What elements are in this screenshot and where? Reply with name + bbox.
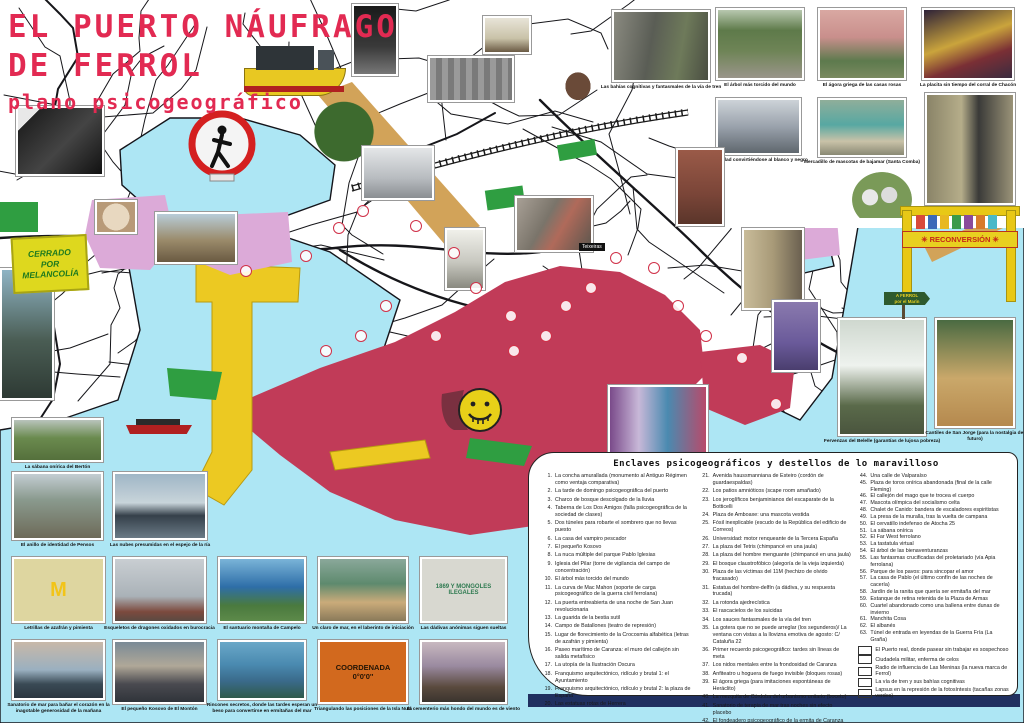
legend-item-number: 26.: [701, 536, 710, 543]
legend-item-text: La casa de Pablo (el último confín de la…: [870, 575, 1009, 589]
legend-item-number: 53.: [858, 541, 867, 548]
legend-item-number: 8.: [543, 552, 552, 559]
hanging-cloth: [976, 215, 985, 229]
numbered-marker: [700, 330, 712, 342]
legend-item: 18. Franquismo arquitectónico, ridículo …: [543, 671, 694, 685]
photo-caption: La placita sin tiempo del corral de Chac…: [905, 83, 1024, 89]
photo-image: [155, 212, 237, 264]
collage-photo: 1869 Y MONGOLES ILEGALES Las dádivas anó…: [420, 557, 507, 623]
legend-item-text: Parque de los pavos: para sincopar el am…: [870, 569, 973, 576]
photo-caption: El ágora griega de las casas rosas: [802, 83, 922, 89]
photo-image: [113, 640, 206, 704]
collage-photo: [95, 200, 137, 234]
hanging-cloth: [928, 215, 937, 229]
legend-item: 20. Las estatuas rotas de Herrera: [543, 701, 694, 708]
numbered-marker: [410, 220, 422, 232]
legend-item: 47. Mascota olímpica del socialismo celt…: [858, 500, 1009, 507]
collage-photo: El ágora griega de las casas rosas: [818, 8, 906, 80]
legend-item-number: 24.: [701, 512, 710, 519]
collage-photo: [676, 148, 724, 226]
collage-photo: El pequeño Kosovo de El Montón: [113, 640, 206, 704]
photo-image: [12, 418, 103, 462]
legend-color-swatch: [858, 689, 872, 698]
collage-photo: Cantiles de San Jorge (para la nostalgia…: [935, 318, 1015, 428]
legend-item-text: El ágora griega (para imitaciones espont…: [713, 679, 852, 693]
legend-item-number: 16.: [543, 647, 552, 661]
legend-item-number: 11.: [543, 585, 552, 599]
photo-caption: El cementerio más hondo del mundo es de …: [404, 707, 522, 713]
legend-color-row: Ciudadela militar, enferma de celos: [858, 655, 1009, 664]
pedestrian-sign: [188, 110, 256, 182]
legend-item: 63. Túnel de entrada en leyendas de la G…: [858, 630, 1009, 644]
legend-item-number: 31.: [701, 585, 710, 599]
photo-image: [925, 93, 1015, 205]
legend-item-text: Primer recuerdo psicogeográfico: tardes …: [713, 647, 852, 661]
photo-image: [612, 10, 710, 82]
legend-item-text: La curva de Mac Mahon (soporte de carga …: [555, 585, 694, 599]
legend-item: 13. La guarida de la bestia sutil: [543, 615, 694, 622]
numbered-marker: [320, 345, 332, 357]
legend-item: 7. El pequeño Kosovo: [543, 544, 694, 551]
numbered-marker: [610, 252, 622, 264]
photo-image: [742, 228, 804, 310]
legend-item-text: Fósil inexplicable (escudo de la Repúbli…: [713, 520, 852, 534]
legend-item: 56. Parque de los pavos: para sincopar e…: [858, 569, 1009, 576]
legend-item-text: Mascota olímpica del socialismo celta: [870, 500, 959, 507]
cerrado-por-melancolia-sign: CERRADO POR MELANCOLÍA: [11, 234, 90, 294]
legend-item-number: 41.: [701, 703, 710, 717]
legend-item-number: 33.: [701, 608, 710, 615]
photo-image: [818, 98, 906, 157]
legend-item-number: 44.: [858, 473, 867, 480]
legend-item: 14. Campo de Batallones (teatro de repre…: [543, 623, 694, 630]
photo-image: [218, 557, 306, 623]
legend-item-text: Sanatorio de terapia de mar tras noches …: [713, 703, 852, 717]
hanging-cloth: [916, 215, 925, 229]
legend-item-text: Las estatuas rotas de Herrera: [555, 701, 626, 708]
legend-item-number: 47.: [858, 500, 867, 507]
legend-item: 60. Cuartel abandonado como una ballena …: [858, 603, 1009, 617]
numbered-marker: [560, 300, 572, 312]
cargo-ship-collage: [126, 416, 192, 434]
collage-photo: Sanatorio de mar para bañar el corazón e…: [12, 640, 105, 700]
numbered-marker: [508, 345, 520, 357]
map-title-line2: DE FERROL: [8, 47, 398, 86]
legend-item-number: 19.: [543, 686, 552, 700]
legend-item-number: 25.: [701, 520, 710, 534]
numbered-marker: [505, 310, 517, 322]
hanging-cloth: [988, 215, 997, 229]
collage-photo: La sábana onírica del Bertón: [12, 418, 103, 462]
legend-item-text: La concha amurallada (monumento al Antig…: [555, 473, 694, 487]
numbered-marker: [585, 282, 597, 294]
legend-item-number: 23.: [701, 497, 710, 511]
map-title-block: EL PUERTO NÁUFRAGO DE FERROL plano psico…: [8, 8, 398, 114]
legend-item-number: 45.: [858, 480, 867, 494]
legend-item: 11. La curva de Mac Mahon (soporte de ca…: [543, 585, 694, 599]
legend-item-text: La gotera que no se puede arreglar (los …: [713, 625, 852, 645]
ship-deck: [136, 419, 180, 426]
legend-item-number: 4.: [543, 505, 552, 519]
legend-item-text: La guarida de la bestia sutil: [555, 615, 620, 622]
legend-item-number: 63.: [858, 630, 867, 644]
legend-item-text: La sábana onírica: [870, 528, 912, 535]
legend-item: 51. La sábana onírica: [858, 528, 1009, 535]
legend-item: 57. La casa de Pablo (el último confín d…: [858, 575, 1009, 589]
legend-item-text: Universidad: motor renqueante de la Terc…: [713, 536, 838, 543]
photo-image: [95, 200, 137, 234]
legend-item-text: El fondeadero psicogeográfico de la ermi…: [713, 718, 844, 723]
legend-item: 6. La casa del vampiro pescador: [543, 536, 694, 543]
numbered-marker: [240, 265, 252, 277]
legend-title: Enclaves psicogeográficos y destellos de…: [543, 459, 1009, 469]
legend-item-text: La nuca múltiple del parque Pablo Iglesi…: [555, 552, 655, 559]
legend-item-number: 18.: [543, 671, 552, 685]
legend-item-number: 9.: [543, 561, 552, 575]
teixeiras-label: Teixeiras: [579, 243, 605, 251]
legend-item-number: 6.: [543, 536, 552, 543]
legend-item-number: 39.: [701, 679, 710, 693]
photo-image: [483, 16, 531, 54]
legend-item-text: La tarde de domingo psicogeográfica del …: [555, 488, 668, 495]
photo-image: [772, 300, 820, 372]
legend-item-number: 54.: [858, 548, 867, 555]
legend-item-text: La presa de la muralla, tras la vuelta d…: [870, 514, 987, 521]
legend-item-number: 61.: [858, 616, 867, 623]
legend-item-number: 5.: [543, 520, 552, 534]
legend-item-text: Estanque de retina retenida de la Plaza …: [870, 596, 988, 603]
legend-color-swatch: [858, 655, 872, 664]
legend-item-number: 60.: [858, 603, 867, 617]
ferrol-signpost: A FERROL por el Marín: [884, 292, 930, 319]
legend-item-text: El rascacielos de los suicidas: [713, 608, 783, 615]
collage-photo: Mercadillo de mascotas de bajamar (Santa…: [818, 98, 906, 157]
numbered-marker: [448, 247, 460, 259]
legend-item-number: 10.: [543, 576, 552, 583]
legend-item: 50. El cervatillo indefenso de Atocha 25: [858, 521, 1009, 528]
legend-item-text: Cuartel abandonado como una ballena entr…: [870, 603, 1009, 617]
legend-color-swatch: [858, 678, 872, 687]
legend-item-number: 57.: [858, 575, 867, 589]
map-subtitle: plano psicogeográfico: [8, 90, 398, 114]
collage-photo: El anillo de identidad de Pensos: [12, 472, 103, 540]
numbered-marker: [357, 205, 369, 217]
collage-photo: [772, 300, 820, 372]
legend-item-text: La plaza del hombre menguante (chimpancé…: [713, 552, 851, 559]
hanging-cloth: [964, 215, 973, 229]
legend-item-text: Una calle de Valparaíso: [870, 473, 926, 480]
legend-item-text: Los sauces fantasmales de la vía del tre…: [713, 617, 811, 624]
legend-item-text: Campo de Batallones (teatro de represión…: [555, 623, 656, 630]
collage-photo: [556, 62, 600, 106]
numbered-marker: [380, 300, 392, 312]
legend-item: 39. El ágora griega (para imitaciones es…: [701, 679, 852, 693]
legend-item: 24. Plaza de Amboaxe: una mascota vestid…: [701, 512, 852, 519]
legend-item: 12. La puerta entreabierta de una noche …: [543, 600, 694, 614]
legend-item: 42. El fondeadero psicogeográfico de la …: [701, 718, 852, 723]
signpost-line2: por el Marín: [895, 299, 920, 304]
legend-item: 10. El árbol más torcido del mundo: [543, 576, 694, 583]
signpost-line1: A FERROL: [896, 293, 918, 298]
numbered-marker: [470, 282, 482, 294]
signpost-arrow: A FERROL por el Marín: [884, 292, 930, 305]
collage-photo: [428, 56, 514, 102]
legend-item: 62. El albanés: [858, 623, 1009, 630]
collage-photo: [483, 16, 531, 54]
hanging-cloth: [952, 215, 961, 229]
legend-panel: Enclaves psicogeográficos y destellos de…: [528, 452, 1018, 696]
legend-item: 38. Anfiteatro u hoguera de fuego invisi…: [701, 671, 852, 678]
legend-item-text: La puerta entreabierta de una noche de S…: [555, 600, 694, 614]
legend-item-text: Jardín de la ranita que quería ser ermit…: [870, 589, 990, 596]
legend-item-text: Plaza de las víctimas del 11M (hechizo d…: [713, 569, 852, 583]
photo-caption: Mercadillo de mascotas de bajamar (Santa…: [802, 160, 922, 166]
legend-color-row: El Puerto real, donde pasear sin trabaja…: [858, 646, 1009, 655]
photo-caption: Las bahías cognitivas y fantasmales de l…: [594, 85, 727, 91]
numbered-marker: [672, 300, 684, 312]
legend-item-number: 36.: [701, 647, 710, 661]
photo-image: [318, 557, 408, 623]
legend-item: 34. Los sauces fantasmales de la vía del…: [701, 617, 852, 624]
hanging-cloth: [940, 215, 949, 229]
legend-item: 53. La tastatula virtual: [858, 541, 1009, 548]
legend-item-number: 51.: [858, 528, 867, 535]
legend-item-text: La utopía de la Ilustración Oscura: [555, 662, 635, 669]
photo-image: [420, 640, 507, 704]
legend-item-text: Plaza de toros onírica abandonada (final…: [870, 480, 1009, 494]
legend-color-row: La vía de tren y sus bahías cognitivas: [858, 678, 1009, 687]
legend-item: 41. Sanatorio de terapia de mar tras noc…: [701, 703, 852, 717]
legend-color-label: Lapsus en la represión de la fotosíntesi…: [875, 687, 1009, 699]
legend-item-number: 52.: [858, 534, 867, 541]
legend-item-text: La casa del vampiro pescador: [555, 536, 626, 543]
legend-item-number: 29.: [701, 561, 710, 568]
legend-item: 61. Manchita Cosa: [858, 616, 1009, 623]
legend-color-swatch: [858, 667, 872, 676]
legend-item-text: El cervatillo indefenso de Atocha 25: [870, 521, 955, 528]
photo-inner-text: COORDENADA 0°0'0'': [318, 640, 408, 704]
photo-inner-text: 1869 Y MONGOLES ILEGALES: [420, 557, 507, 623]
legend-item: 17. La utopía de la Ilustración Oscura: [543, 662, 694, 669]
legend-color-key: El Puerto real, donde pasear sin trabaja…: [858, 645, 1009, 699]
legend-item: 19. Franquismo arquitectónico, ridículo …: [543, 686, 694, 700]
legend-item-number: 14.: [543, 623, 552, 630]
collage-photo: [155, 212, 237, 264]
legend-item-number: 3.: [543, 497, 552, 504]
photo-image: [676, 148, 724, 226]
legend-item-text: Avenida haussmanniana de Esteiro (cordón…: [713, 473, 852, 487]
legend-item: 33. El rascacielos de los suicidas: [701, 608, 852, 615]
reconversion-swings-collage: [900, 206, 1018, 302]
photo-inner-text: M: [12, 557, 105, 623]
collage-photo: [742, 228, 804, 310]
legend-item-text: El albanés: [870, 623, 895, 630]
legend-item-text: Plaza de Amboaxe: una mascota vestida: [713, 512, 810, 519]
photo-image: [445, 228, 485, 290]
legend-item-number: 22.: [701, 488, 710, 495]
legend-item-text: El árbol de las bienaventuranzas: [870, 548, 948, 555]
numbered-marker: [736, 352, 748, 364]
legend-item-number: 34.: [701, 617, 710, 624]
legend-item-number: 49.: [858, 514, 867, 521]
collage-photo: M Letrillas de azafrán y pimienta: [12, 557, 105, 623]
legend-item: 23. Los jeroglíficos benjaminianos del e…: [701, 497, 852, 511]
legend-item: 55. Las fantasmas crucificadas del prole…: [858, 555, 1009, 569]
legend-item-text: El árbol más torcido del mundo: [555, 576, 629, 583]
photo-image: [716, 8, 804, 80]
legend-color-label: Radio de influencia de Las Meninas (la n…: [875, 665, 1009, 677]
legend-color-label: Ciudadela militar, enferma de celos: [875, 657, 958, 663]
smiley-face-icon: [459, 389, 501, 431]
legend-item: 37. Los nidos mentales entre la frondosi…: [701, 662, 852, 669]
legend-item-number: 30.: [701, 569, 710, 583]
legend-item: 15. Lugar de florecimiento de la Crocosm…: [543, 632, 694, 646]
legend-item: 4. Taberna de Los Dos Amigos (falla psic…: [543, 505, 694, 519]
legend-item: 40. La mezquita de Córdoba del urbanismo…: [701, 694, 852, 701]
legend-item: 49. La presa de la muralla, tras la vuel…: [858, 514, 1009, 521]
legend-item-text: Iglesia del Pilar (torre de vigilancia d…: [555, 561, 694, 575]
legend-item: 30. Plaza de las víctimas del 11M (hechi…: [701, 569, 852, 583]
collage-photo: [362, 146, 434, 200]
photo-image: [935, 318, 1015, 428]
collage-photo: [16, 106, 104, 176]
legend-item-text: La mezquita de Córdoba del urbanismo uni…: [713, 694, 847, 701]
legend-item-text: Manchita Cosa: [870, 616, 906, 623]
legend-item-text: Franquismo arquitectónico, ridículo y br…: [555, 671, 694, 685]
numbered-marker: [300, 250, 312, 262]
legend-item-number: 38.: [701, 671, 710, 678]
legend-item: 52. El Far West ferrolano: [858, 534, 1009, 541]
legend-item-number: 21.: [701, 473, 710, 487]
legend-item-text: Chalet de Canido: bandera de escaladores…: [870, 507, 998, 514]
legend-item-number: 17.: [543, 662, 552, 669]
legend-item-text: Estatua del hombre-delfín (a dádiva, y s…: [713, 585, 852, 599]
collage-photo: La ciudad convirtiéndose al blanco y neg…: [716, 98, 801, 155]
photo-image: [922, 8, 1014, 80]
legend-item: 27. La plaza del Tetris (chimpancé en un…: [701, 544, 852, 551]
legend-item: 54. El árbol de las bienaventuranzas: [858, 548, 1009, 555]
legend-item-number: 27.: [701, 544, 710, 551]
legend-item-number: 15.: [543, 632, 552, 646]
collage-photo: [445, 228, 485, 290]
legend-item: 58. Jardín de la ranita que quería ser e…: [858, 589, 1009, 596]
photo-image: [556, 62, 600, 106]
legend-item: 9. Iglesia del Pilar (torre de vigilanci…: [543, 561, 694, 575]
photo-image: [12, 472, 103, 540]
collage-photo: Los desfiladeros de Caranza: [925, 93, 1015, 205]
legend-item: 21. Avenida haussmanniana de Esteiro (co…: [701, 473, 852, 487]
photo-image: [362, 146, 434, 200]
legend-color-row: Lapsus en la represión de la fotosíntesi…: [858, 687, 1009, 699]
collage-photo: COORDENADA 0°0'0'' Triangulando las posi…: [318, 640, 408, 704]
legend-item: 35. La gotera que no se puede arreglar (…: [701, 625, 852, 645]
legend-item: 46. El callejón del mago que te trocea e…: [858, 493, 1009, 500]
numbered-marker: [333, 222, 345, 234]
legend-item-number: 7.: [543, 544, 552, 551]
photo-image: [113, 472, 207, 540]
legend-item: 28. La plaza del hombre menguante (chimp…: [701, 552, 852, 559]
legend-color-label: La vía de tren y sus bahías cognitivas: [875, 679, 964, 685]
legend-item-number: 40.: [701, 694, 710, 701]
legend-item: 3. Charco de bosque descolgado de la llu…: [543, 497, 694, 504]
collage-photo: El cementerio más hondo del mundo es de …: [420, 640, 507, 704]
legend-column-2: 21. Avenida haussmanniana de Esteiro (co…: [701, 473, 852, 723]
legend-item-text: El callejón del mago que te trocea el cu…: [870, 493, 974, 500]
photo-image: [113, 557, 206, 623]
legend-item: 29. El bosque claustrofóbico (alegoría d…: [701, 561, 852, 568]
photo-image: [16, 106, 104, 176]
legend-item-text: El Far West ferrolano: [870, 534, 920, 541]
legend-item-number: 48.: [858, 507, 867, 514]
collage-photo: La placita sin tiempo del corral de Chac…: [922, 8, 1014, 80]
legend-item-text: Franquismo arquitectónico, ridículo y br…: [555, 686, 694, 700]
legend-item: 59. Estanque de retina retenida de la Pl…: [858, 596, 1009, 603]
legend-item-text: Taberna de Los Dos Amigos (falla psicoge…: [555, 505, 694, 519]
legend-item: 5. Dos túneles para robarte el sombrero …: [543, 520, 694, 534]
legend-item-text: Lugar de florecimiento de la Crocosmia a…: [555, 632, 694, 646]
collage-photo: Rincones secretos, donde las tardes espe…: [218, 640, 306, 700]
legend-item: 48. Chalet de Canido: bandera de escalad…: [858, 507, 1009, 514]
legend-item-text: Las fantasmas crucificadas del proletari…: [870, 555, 1009, 569]
collage-photo: El santuario montaña de Campelo: [218, 557, 306, 623]
collage-photo: Esqueletos de dragones oxidados en buroc…: [113, 557, 206, 623]
legend-item-number: 13.: [543, 615, 552, 622]
psychogeographic-map-canvas: EL PUERTO NÁUFRAGO DE FERROL plano psico…: [0, 0, 1024, 723]
legend-item-text: Los patios amnióticos (scape room amañad…: [713, 488, 821, 495]
numbered-marker: [430, 330, 442, 342]
legend-item: 8. La nuca múltiple del parque Pablo Igl…: [543, 552, 694, 559]
collage-photo: Un claro de mar, en el laberinto de inic…: [318, 557, 408, 623]
photo-image: [818, 8, 906, 80]
legend-item: 25. Fósil inexplicable (escudo de la Rep…: [701, 520, 852, 534]
legend-item-number: 12.: [543, 600, 552, 614]
legend-item-text: Dos túneles para robarte el sombrero que…: [555, 520, 694, 534]
legend-color-row: Radio de influencia de Las Meninas (la n…: [858, 665, 1009, 677]
photo-caption: Las dádivas anónimas siguen sueltas: [404, 626, 522, 632]
legend-item-text: Charco de bosque descolgado de la lluvia: [555, 497, 654, 504]
legend-color-swatch: [858, 646, 872, 655]
legend-item-text: La plaza del Tetris (chimpancé en una ja…: [713, 544, 817, 551]
legend-color-label: El Puerto real, donde pasear sin trabaja…: [875, 647, 1008, 653]
photo-caption: Las nubes presumidas en el espejo de la …: [96, 543, 224, 549]
legend-item-text: Los nidos mentales entre la frondosidad …: [713, 662, 837, 669]
legend-item-text: Túnel de entrada en leyendas de la Guerr…: [870, 630, 1009, 644]
legend-item-number: 46.: [858, 493, 867, 500]
photo-image: [716, 98, 801, 155]
collage-photo: Las nubes presumidas en el espejo de la …: [113, 472, 207, 540]
collage-photo: El árbol más torcido del mundo: [716, 8, 804, 80]
legend-item-number: 37.: [701, 662, 710, 669]
legend-item-number: 55.: [858, 555, 867, 569]
legend-item-number: 20.: [543, 701, 552, 708]
photo-image: [838, 318, 926, 436]
photo-image: [428, 56, 514, 102]
legend-item-number: 42.: [701, 718, 710, 723]
collage-photo: Las bahías cognitivas y fantasmales de l…: [612, 10, 710, 82]
reconversion-banner: ✳ RECONVERSIÓN ✳: [902, 231, 1018, 248]
legend-item-text: El bosque claustrofóbico (alegoría de la…: [713, 561, 844, 568]
legend-item: 31. Estatua del hombre-delfín (a dádiva,…: [701, 585, 852, 599]
legend-item: 2. La tarde de domingo psicogeográfica d…: [543, 488, 694, 495]
signpost-pole: [902, 305, 905, 319]
collage-photo: Fervenzas del Belelle (garantías de lujo…: [838, 318, 926, 436]
legend-item-text: Los jeroglíficos benjaminianos del escap…: [713, 497, 852, 511]
legend-item: 36. Primer recuerdo psicogeográfico: tar…: [701, 647, 852, 661]
legend-item: 1. La concha amurallada (monumento al An…: [543, 473, 694, 487]
photo-caption: Cantiles de San Jorge (para la nostalgia…: [921, 431, 1024, 443]
photo-image: [218, 640, 306, 700]
legend-item: 44. Una calle de Valparaíso: [858, 473, 1009, 480]
